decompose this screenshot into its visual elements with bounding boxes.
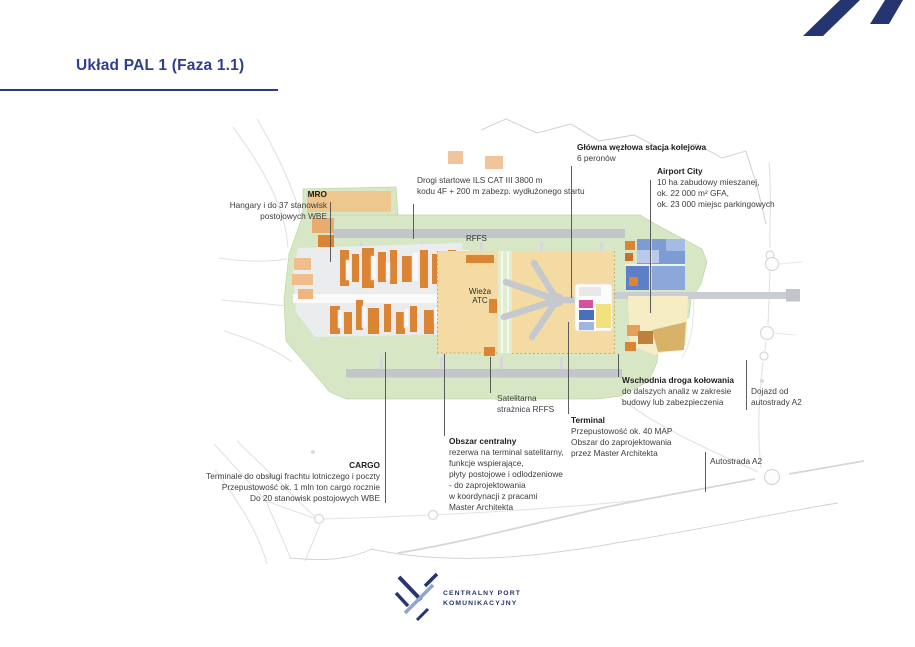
cpk-logo-icon [396,574,437,620]
terminal-building [575,284,612,331]
rffs-station [466,255,494,263]
airport-city-blocks [625,239,685,290]
annotation-satellite-rffs: Satelitarna strażnica RFFS [497,393,554,415]
cpk-logo-wordmark: CENTRALNY PORT KOMUNIKACYJNY [443,589,521,608]
annotation-title: MRO [230,189,327,200]
cpk-logo-corner [803,0,903,36]
annotation-title: Obszar centralny [449,436,564,447]
annotation-title: CARGO [206,460,380,471]
map-label-atc: Wieża ATC [459,287,501,305]
annotation-central-area: Obszar centralny rezerwa na terminal sat… [449,436,564,513]
annotation-a2-highway: Autostrada A2 [710,456,762,467]
annotation-terminal: Terminal Przepustowość ok. 40 MAP Obszar… [571,415,672,459]
annotation-cargo: CARGO Terminale do obsługi frachtu lotni… [206,460,380,504]
annotation-east-taxiway: Wschodnia droga kołowania do dalszych an… [622,375,734,408]
annotation-title: Airport City [657,166,775,177]
annotation-airport-city: Airport City 10 ha zabudowy mieszanej, o… [657,166,775,210]
satellite-rffs-station [484,347,495,356]
page-title: Układ PAL 1 (Faza 1.1) [76,57,244,75]
slide: Układ PAL 1 (Faza 1.1) RFFS Wieża ATC MR… [0,0,915,647]
annotation-title: Terminal [571,415,672,426]
annotation-a2-access: Dojazd od autostrady A2 [751,386,802,408]
title-underline [0,89,278,91]
annotation-mro: MRO Hangary i do 37 stanowisk postojowyc… [230,189,327,222]
annotation-rail-station: Główna węzłowa stacja kolejowa 6 peronów [577,142,706,164]
airport-map [0,0,915,647]
annotation-runways: Drogi startowe ILS CAT III 3800 m kodu 4… [417,175,585,197]
annotation-title: Główna węzłowa stacja kolejowa [577,142,706,153]
annotation-title: Wschodnia droga kołowania [622,375,734,386]
airport-city-south-zone [625,296,688,355]
map-label-rffs: RFFS [466,234,487,243]
